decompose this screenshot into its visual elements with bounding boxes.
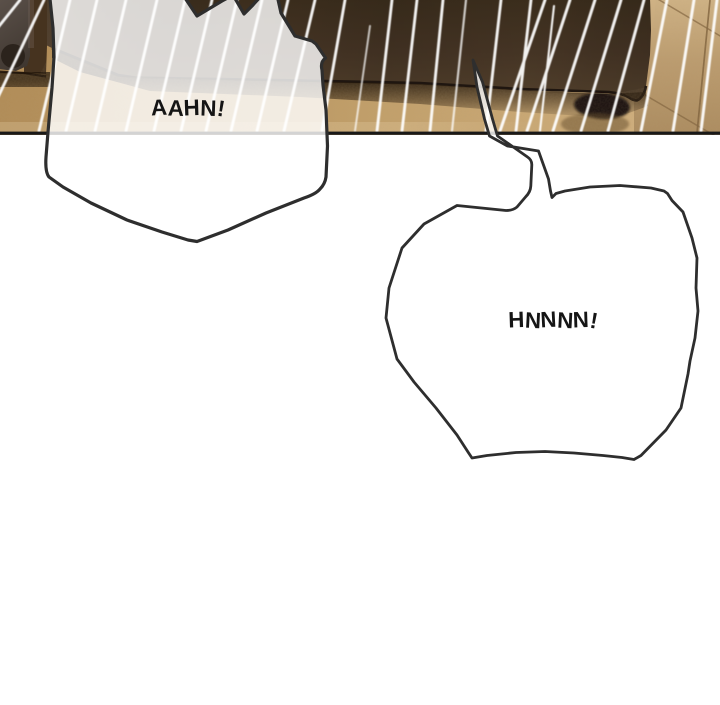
svg-text:HNNNN!: HNNNN! [508,307,600,334]
svg-text:AAHN!: AAHN! [150,95,227,122]
